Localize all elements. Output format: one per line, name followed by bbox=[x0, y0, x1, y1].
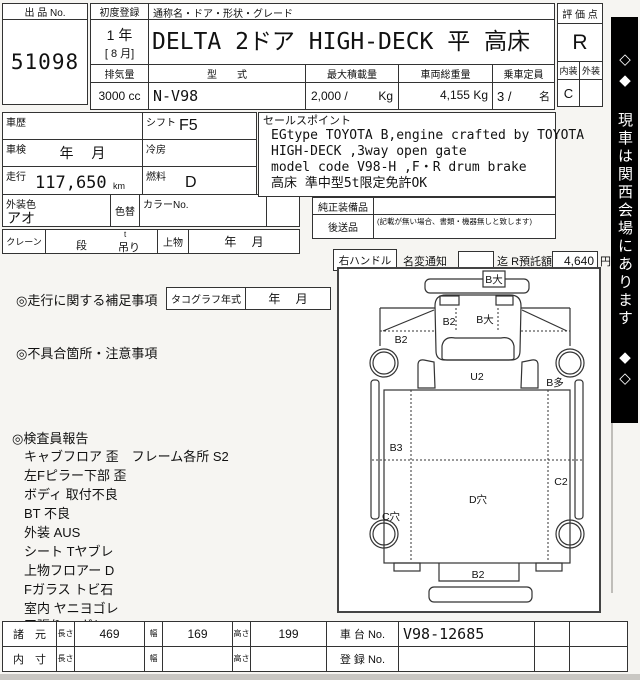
bed-outline bbox=[384, 390, 570, 563]
first-reg-year: 1 年 bbox=[91, 25, 148, 45]
length-label: 長さ bbox=[57, 655, 74, 663]
tacho-label: タコグラフ年式 bbox=[171, 291, 241, 306]
model-value: N-V98 bbox=[149, 83, 305, 105]
later-items-label-cell: 後送品 bbox=[312, 214, 374, 239]
sales-line: 高床 準中型5t限定免許OK bbox=[271, 176, 555, 192]
max-load-unit: Kg bbox=[378, 89, 393, 103]
crane-t-label: t bbox=[124, 230, 126, 239]
truck-schematic-svg: B大 B2 B大 B2 U2 B多 B3 C2 D穴 C穴 B2 bbox=[339, 269, 599, 611]
mileage-note-heading: ◎走行に関する補足事項 bbox=[16, 290, 157, 309]
front-bumper-shape bbox=[425, 279, 529, 293]
later-items-note: (記載が無い場合、書類・機器無しと致します) bbox=[377, 216, 532, 227]
inner-height-value bbox=[250, 646, 327, 672]
inner-length-value bbox=[74, 646, 145, 672]
venue-banner: ◇◆ 現車は関西会場にあります ◆◇ bbox=[611, 17, 638, 423]
damage-code-right-front-side: B多 bbox=[546, 376, 564, 389]
inner-height-label-cell: 高さ bbox=[232, 646, 251, 672]
inspector-line: Fガラス トビ石 bbox=[24, 579, 113, 598]
score-label: 評 価 点 bbox=[562, 6, 598, 21]
crane-tsuri-label: 吊り bbox=[118, 239, 140, 255]
left-door-shape bbox=[418, 360, 435, 388]
gross-weight-label: 車両総重量 bbox=[421, 66, 471, 81]
right-diagonal bbox=[522, 310, 567, 331]
crane-body-label: 上物 bbox=[163, 234, 183, 249]
max-load-value: 2,000 / bbox=[311, 89, 348, 103]
displacement-label: 排気量 bbox=[105, 66, 135, 81]
history-label: 車歴 bbox=[6, 114, 26, 129]
score-value: R bbox=[558, 24, 602, 62]
recolor-cell: 色替 bbox=[110, 194, 140, 227]
scan-bottom-strip bbox=[0, 674, 640, 680]
inner-row-label: 内 寸 bbox=[2, 646, 57, 672]
inner-extra-cell-1 bbox=[534, 646, 570, 672]
color-extra-cell bbox=[266, 194, 300, 227]
interior-label: 内装 bbox=[558, 62, 580, 79]
chassis-no-value: V98-12685 bbox=[398, 621, 535, 647]
width-label: 幅 bbox=[145, 655, 162, 663]
spec-height-value: 199 bbox=[250, 621, 327, 647]
aircon-cell: 冷房 bbox=[142, 139, 257, 167]
height-label: 高さ bbox=[233, 655, 250, 663]
inspection-label: 車検 bbox=[6, 141, 26, 156]
defect-heading: ◎不具合箇所・注意事項 bbox=[16, 343, 157, 362]
spec-width-label-cell: 幅 bbox=[144, 621, 163, 647]
mileage-label: 走行 bbox=[6, 168, 26, 183]
fuel-cell: 燃料 D bbox=[142, 166, 257, 195]
displacement-cell: 排気量 3000 cc bbox=[90, 64, 149, 110]
chassis-no-label-cell: 車 台 No. bbox=[326, 621, 399, 647]
spec-length-label-cell: 長さ bbox=[56, 621, 75, 647]
model-cell: 型 式 N-V98 bbox=[148, 64, 306, 110]
mileage-value: 117,650 bbox=[35, 173, 107, 193]
name-header: 通称名・ドア・形状・グレード bbox=[148, 3, 555, 20]
reg-no-value bbox=[398, 646, 535, 672]
spec-width-value: 169 bbox=[162, 621, 233, 647]
damage-code-rear-gate: B2 bbox=[472, 569, 485, 581]
front-left-wheel bbox=[370, 349, 398, 377]
auction-sheet: 出 品 No. 51098 初度登録 1 年 [ 8 月] 通称名・ドア・形状・… bbox=[0, 0, 640, 680]
damage-code-bed-center: D穴 bbox=[469, 493, 488, 506]
sales-line: model code V98-H ,F・R drum brake bbox=[271, 160, 555, 176]
sales-point-box: セールスポイント EGtype TOYOTA B,engine crafted … bbox=[258, 112, 556, 197]
inspector-line: BT 不良 bbox=[24, 503, 70, 522]
inspector-line: 上物フロアー D bbox=[24, 560, 114, 579]
reg-no-label-cell: 登 録 No. bbox=[326, 646, 399, 672]
aircon-label: 冷房 bbox=[146, 141, 166, 156]
length-label: 長さ bbox=[57, 630, 74, 638]
interior-value: C bbox=[558, 80, 580, 106]
damage-code-cab-left: B2 bbox=[443, 316, 456, 328]
gross-weight-value: 4,155 Kg bbox=[399, 83, 492, 109]
fuel-label: 燃料 bbox=[146, 168, 166, 183]
handle-label: 右ハンドル bbox=[339, 253, 392, 268]
inner-length-label-cell: 長さ bbox=[56, 646, 75, 672]
inspection-cell: 車検 年 月 bbox=[2, 139, 143, 167]
first-reg-value: 1 年 [ 8 月] bbox=[90, 19, 149, 65]
exterior-label: 外装 bbox=[580, 62, 602, 79]
damage-code-cab-under: U2 bbox=[470, 371, 484, 383]
inspector-line: 外装 AUS bbox=[24, 522, 80, 541]
tacho-value-cell: 年 月 bbox=[245, 287, 331, 310]
model-label: 型 式 bbox=[207, 66, 247, 81]
capacity-value: 3 / bbox=[497, 89, 511, 104]
color-no-cell: カラーNo. bbox=[139, 194, 267, 227]
crane-label: クレーン bbox=[6, 235, 42, 248]
damage-diagram: B大 B2 B大 B2 U2 B多 B3 C2 D穴 C穴 B2 bbox=[337, 267, 601, 613]
shift-value: F5 bbox=[179, 117, 198, 135]
crane-spec-cell: 段 t 吊り bbox=[45, 229, 158, 254]
first-reg-label: 初度登録 bbox=[100, 4, 140, 19]
scan-edge-line bbox=[611, 423, 613, 593]
damage-code-cab-windshield: B大 bbox=[476, 313, 494, 326]
right-door-shape bbox=[521, 360, 538, 388]
damage-code-front-bumper: B大 bbox=[485, 273, 503, 286]
history-cell: 車歴 bbox=[2, 112, 143, 140]
mileage-unit: km bbox=[113, 181, 125, 191]
inspector-line: キャブフロア 歪 フレーム各所 S2 bbox=[24, 446, 229, 465]
genuine-equip-label: 純正装備品 bbox=[318, 199, 368, 214]
spec-height-label-cell: 高さ bbox=[232, 621, 251, 647]
crane-dan-label: 段 bbox=[76, 237, 87, 253]
shift-cell: シフト F5 bbox=[142, 112, 257, 140]
tacho-label-cell: タコグラフ年式 bbox=[166, 287, 246, 310]
sales-point-label: セールスポイント bbox=[263, 115, 555, 128]
exterior-value bbox=[580, 80, 602, 106]
spec-extra-cell-1 bbox=[534, 621, 570, 647]
yen-label: 円 bbox=[600, 253, 611, 269]
recolor-label: 色替 bbox=[115, 203, 135, 218]
left-diagonal bbox=[383, 310, 434, 331]
vehicle-title: DELTA 2ドア HIGH-DECK 平 高床 bbox=[148, 19, 555, 65]
height-label: 高さ bbox=[233, 630, 250, 638]
right-side-rail bbox=[575, 380, 583, 519]
later-items-label: 後送品 bbox=[328, 219, 358, 234]
spec-row-label: 諸 元 bbox=[2, 621, 57, 647]
color-value: アオ bbox=[7, 208, 35, 228]
crane-body-cell: 上物 bbox=[157, 229, 189, 254]
inner-width-value bbox=[162, 646, 233, 672]
color-cell: 外装色 アオ bbox=[2, 194, 111, 227]
front-right-light bbox=[496, 296, 513, 305]
damage-code-bed-right: C2 bbox=[554, 476, 568, 488]
front-left-light bbox=[440, 296, 459, 305]
lot-no-label: 出 品 No. bbox=[24, 4, 65, 19]
crane-cell: クレーン bbox=[2, 229, 46, 254]
inner-extra-cell-2 bbox=[569, 646, 628, 672]
sales-line: HIGH-DECK ,3way open gate bbox=[271, 144, 555, 160]
max-load-label: 最大積載量 bbox=[327, 66, 377, 81]
sales-line: EGtype TOYOTA B,engine crafted by TOYOTA bbox=[271, 128, 555, 144]
color-no-label: カラーNo. bbox=[143, 196, 189, 211]
first-reg-month: [ 8 月] bbox=[91, 45, 148, 61]
inspector-heading: ◎検査員報告 bbox=[12, 428, 88, 447]
capacity-label: 乗車定員 bbox=[504, 66, 544, 81]
genuine-equip-label-cell: 純正装備品 bbox=[312, 197, 374, 215]
left-side-rail bbox=[371, 380, 379, 519]
lot-no-header: 出 品 No. bbox=[2, 3, 88, 20]
damage-code-left-rear: C穴 bbox=[382, 510, 401, 523]
later-items-value-cell: (記載が無い場合、書類・機器無しと致します) bbox=[373, 214, 556, 239]
mileage-cell: 走行 117,650 km bbox=[2, 166, 143, 195]
lot-number: 51098 bbox=[2, 19, 88, 105]
displacement-value: 3000 cc bbox=[91, 83, 148, 109]
windshield-shape bbox=[442, 338, 514, 360]
damage-code-left-fender: B2 bbox=[395, 334, 408, 346]
front-right-wheel bbox=[556, 349, 584, 377]
rear-bumper-shape bbox=[429, 587, 532, 602]
spec-length-value: 469 bbox=[74, 621, 145, 647]
inspector-line: 左Fピラー下部 歪 bbox=[24, 465, 127, 484]
rear-left-foot bbox=[394, 563, 420, 571]
first-reg-header: 初度登録 bbox=[90, 3, 149, 20]
damage-code-bed-left: B3 bbox=[390, 442, 403, 454]
gross-weight-cell: 車両総重量 4,155 Kg bbox=[398, 64, 493, 110]
rear-right-foot bbox=[536, 563, 562, 571]
genuine-equip-value-cell bbox=[373, 197, 556, 215]
inner-width-label-cell: 幅 bbox=[144, 646, 163, 672]
score-box: 評 価 点 R 内装 外装 C bbox=[557, 3, 603, 107]
capacity-unit: 名 bbox=[539, 88, 550, 104]
crane-date-cell: 年 月 bbox=[188, 229, 300, 254]
inspector-line: ボディ 取付不良 bbox=[24, 484, 118, 503]
max-load-cell: 最大積載量 2,000 / Kg bbox=[305, 64, 399, 110]
shift-label: シフト bbox=[146, 114, 176, 129]
inspector-line: シート Tヤブレ bbox=[24, 541, 114, 560]
fuel-value: D bbox=[185, 174, 197, 192]
capacity-cell: 乗車定員 3 / 名 bbox=[492, 64, 555, 110]
spec-extra-cell-2 bbox=[569, 621, 628, 647]
width-label: 幅 bbox=[145, 630, 162, 638]
